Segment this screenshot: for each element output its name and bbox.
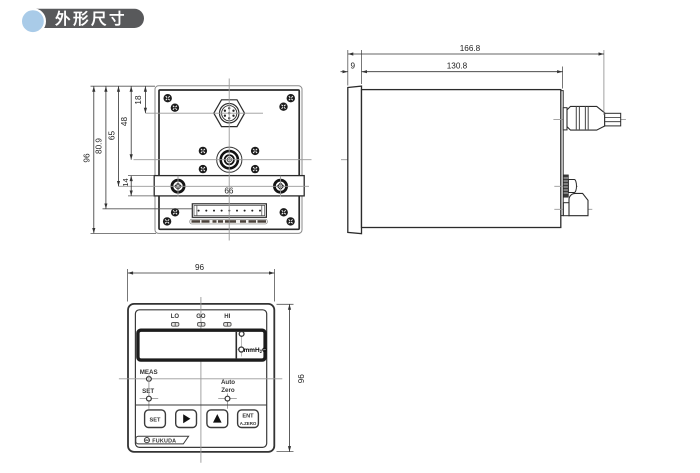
svg-text:14: 14: [121, 178, 130, 186]
svg-text:SET: SET: [142, 388, 154, 395]
svg-text:48: 48: [120, 117, 129, 127]
svg-text:80.9: 80.9: [95, 138, 104, 154]
svg-text:96: 96: [83, 153, 92, 163]
svg-text:GO: GO: [196, 314, 206, 320]
svg-text:Auto: Auto: [221, 379, 235, 386]
svg-text:外形尺寸: 外形尺寸: [55, 9, 127, 28]
svg-text:ENT: ENT: [242, 414, 254, 420]
svg-text:65: 65: [108, 131, 117, 141]
svg-text:SET: SET: [150, 417, 161, 423]
svg-text:18: 18: [134, 95, 143, 105]
svg-text:166.8: 166.8: [460, 44, 481, 53]
svg-text:Zero: Zero: [221, 387, 235, 394]
svg-text:HI: HI: [224, 314, 230, 320]
svg-text:FUKUDA: FUKUDA: [152, 439, 176, 445]
svg-text:9: 9: [351, 62, 356, 71]
svg-text:A.ZERO: A.ZERO: [240, 421, 257, 426]
svg-text:96: 96: [297, 374, 306, 384]
svg-text:130.8: 130.8: [447, 61, 468, 70]
svg-text:mmH2O: mmH2O: [244, 347, 267, 354]
svg-text:LO: LO: [171, 314, 180, 320]
svg-text:96: 96: [195, 263, 205, 272]
